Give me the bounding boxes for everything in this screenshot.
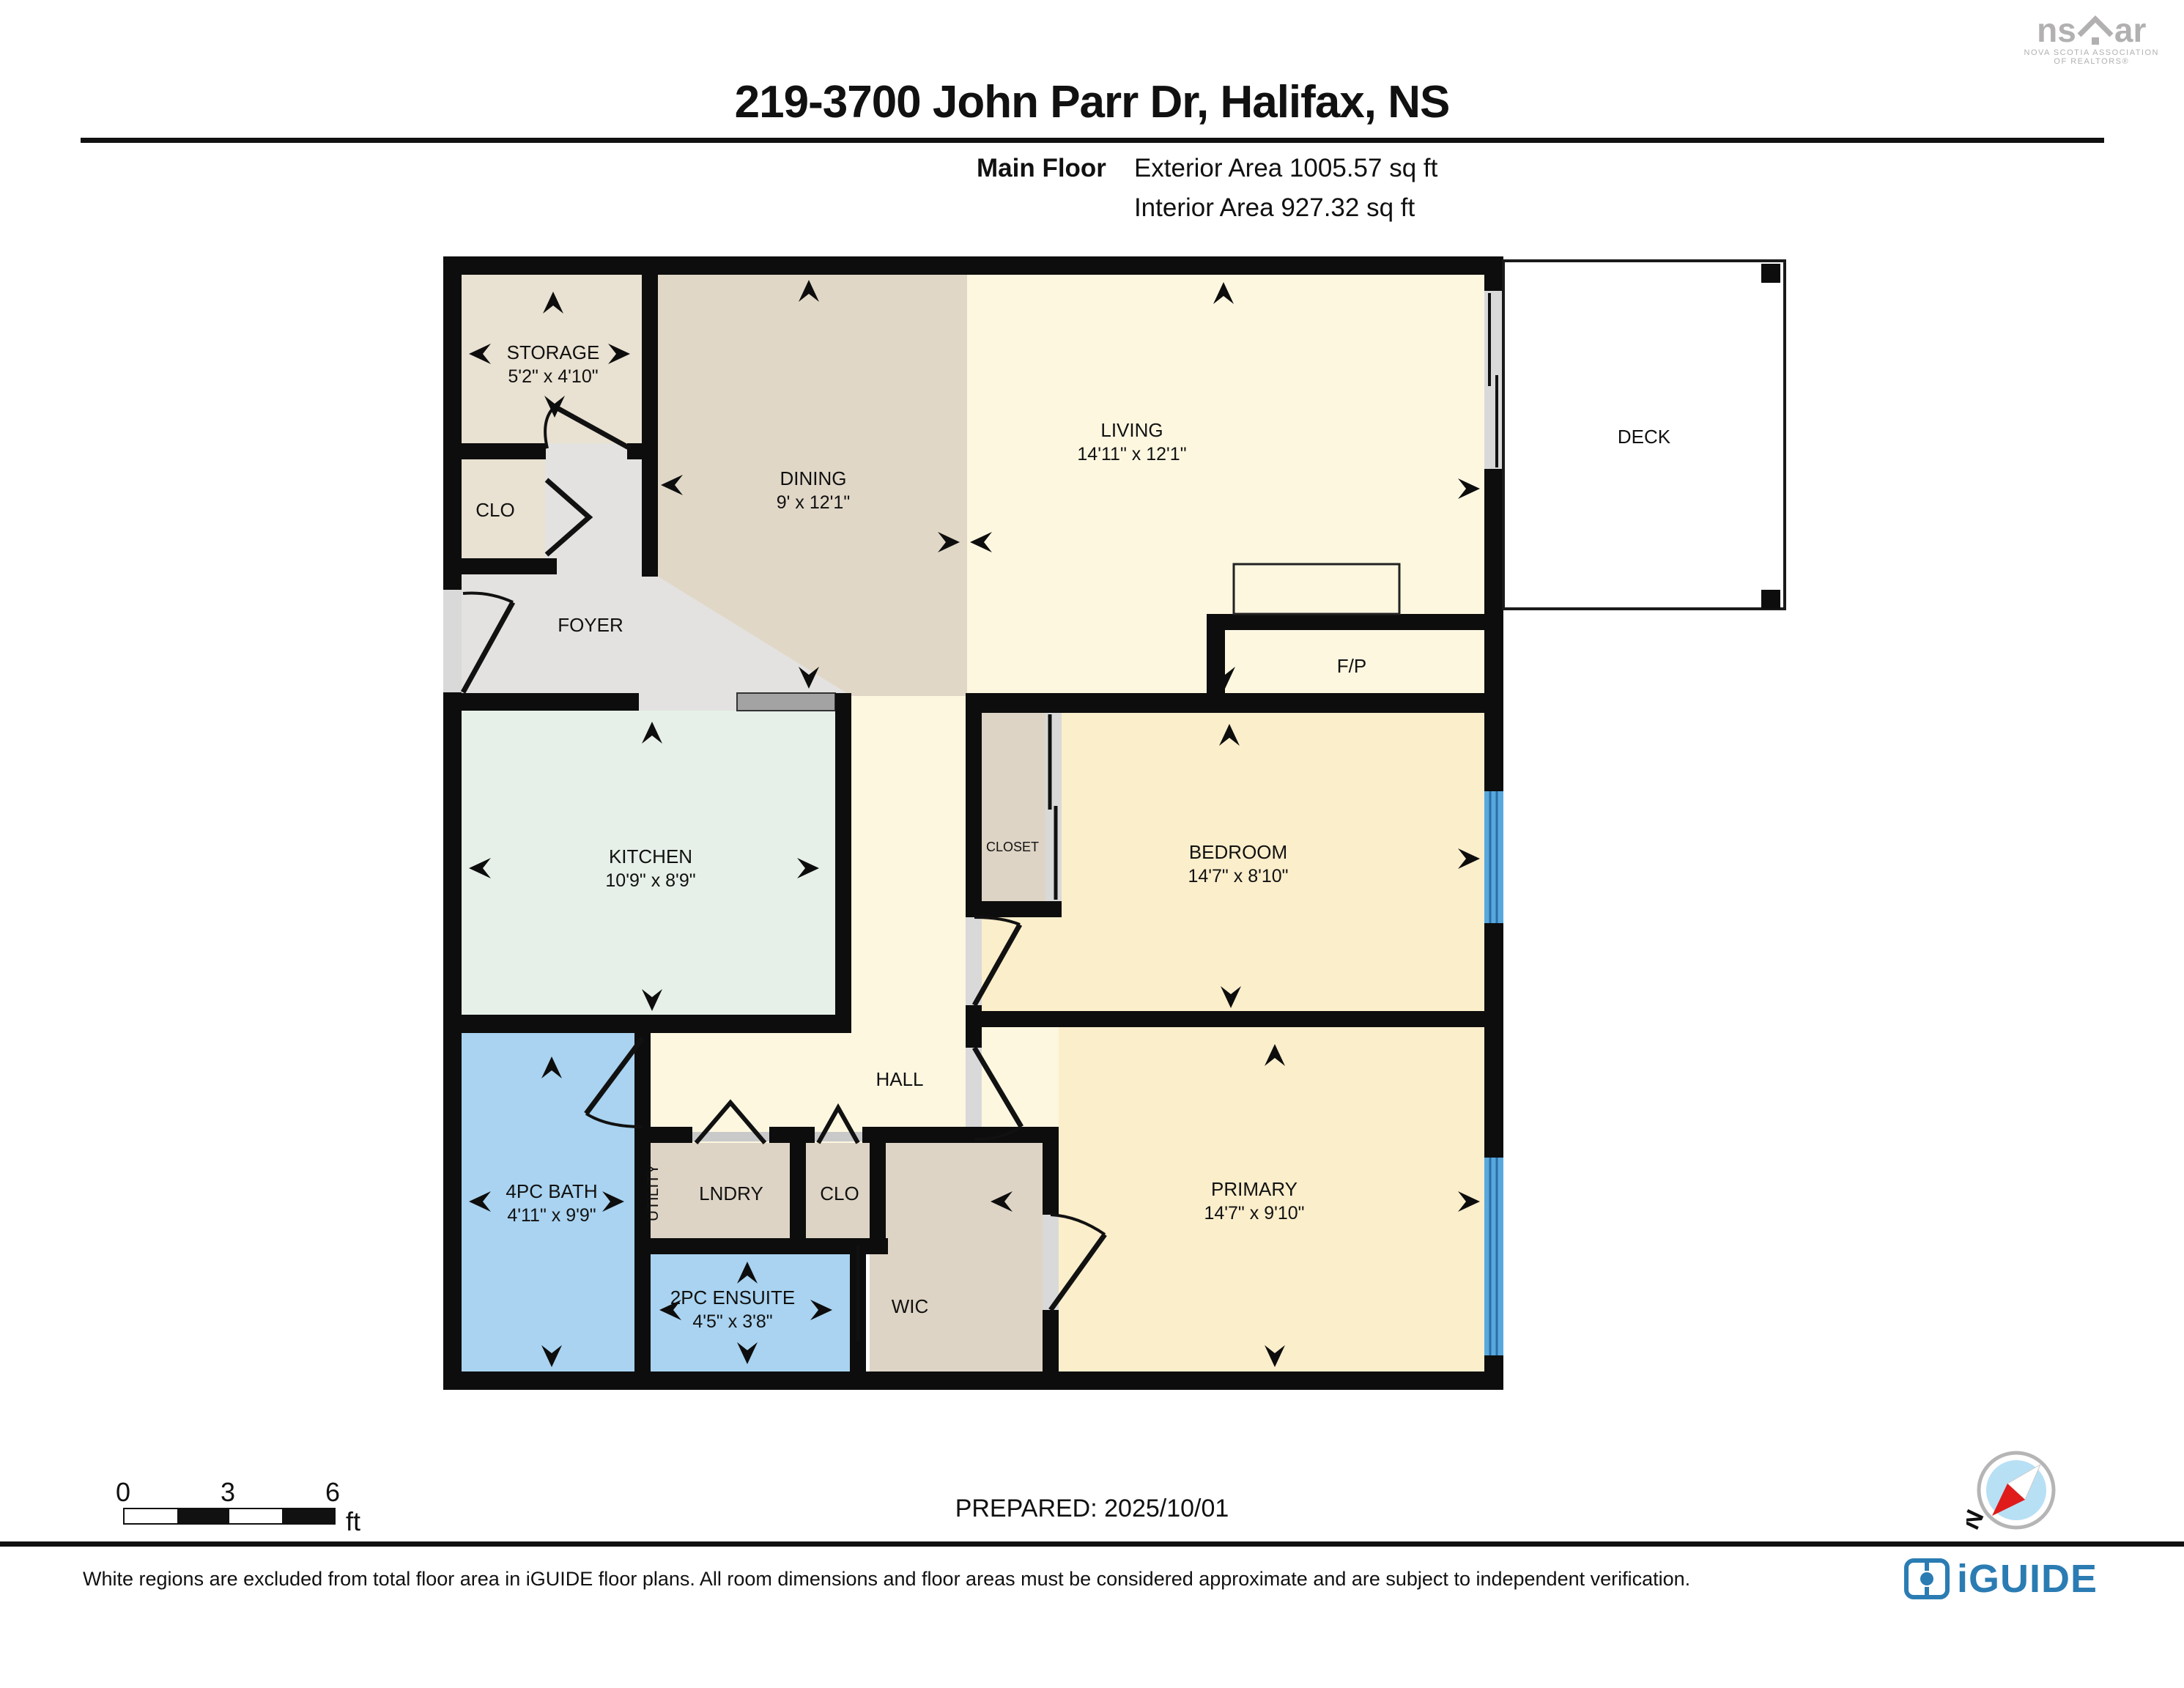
- hall-label: HALL: [876, 1068, 923, 1090]
- prepared-date: PREPARED: 2025/10/01: [0, 1495, 2184, 1523]
- iguide-logo: iGUIDE: [1904, 1556, 2098, 1602]
- kitchen-label: KITCHEN: [609, 845, 692, 867]
- patio-door: [1484, 291, 1503, 469]
- wic-label: WIC: [892, 1295, 929, 1317]
- closet-area: [978, 713, 1045, 901]
- ensuite-dims: 4'5" x 3'8": [692, 1311, 772, 1332]
- laundry-label: LNDRY: [699, 1182, 763, 1204]
- hall-closet-label: CLO: [820, 1182, 859, 1204]
- iguide-camera-icon: [1904, 1556, 1950, 1602]
- floor-plan: STORAGE 5'2" x 4'10" CLO FOYER DINING 9'…: [0, 0, 2184, 1688]
- bedroom-label: BEDROOM: [1189, 841, 1287, 863]
- kitchen-dims: 10'9" x 8'9": [605, 870, 695, 891]
- windows: [1484, 291, 1503, 1355]
- ensuite-label: 2PC ENSUITE: [670, 1287, 796, 1308]
- storage-dims: 5'2" x 4'10": [508, 366, 598, 387]
- primary-dims: 14'7" x 9'10": [1204, 1203, 1304, 1224]
- bath-label: 4PC BATH: [506, 1180, 597, 1202]
- wic-area: [870, 1143, 1059, 1371]
- foyer-label: FOYER: [558, 614, 623, 636]
- dining-label: DINING: [780, 467, 847, 489]
- living-label: LIVING: [1100, 419, 1163, 441]
- bath-dims: 4'11" x 9'9": [507, 1205, 596, 1226]
- bedroom-dims: 14'7" x 8'10": [1188, 866, 1288, 886]
- dining-dims: 9' x 12'1": [777, 492, 850, 513]
- footer-divider: [0, 1541, 2184, 1547]
- compass-icon: N: [1966, 1449, 2062, 1545]
- storage-label: STORAGE: [507, 341, 600, 363]
- disclaimer-text: White regions are excluded from total fl…: [83, 1568, 1690, 1591]
- living-dims: 14'11" x 12'1": [1077, 444, 1186, 464]
- deck-label: DECK: [1618, 426, 1671, 448]
- kitchen-counter: [737, 693, 835, 711]
- bedroom-window: [1484, 791, 1503, 923]
- closet-label: CLOSET: [986, 840, 1039, 854]
- iguide-wordmark: iGUIDE: [1957, 1556, 2098, 1602]
- utility-label: UTILITY: [645, 1164, 662, 1221]
- fireplace-label: F/P: [1337, 655, 1366, 677]
- entry-closet-label: CLO: [475, 499, 514, 521]
- primary-window: [1484, 1158, 1503, 1355]
- primary-label: PRIMARY: [1211, 1178, 1298, 1200]
